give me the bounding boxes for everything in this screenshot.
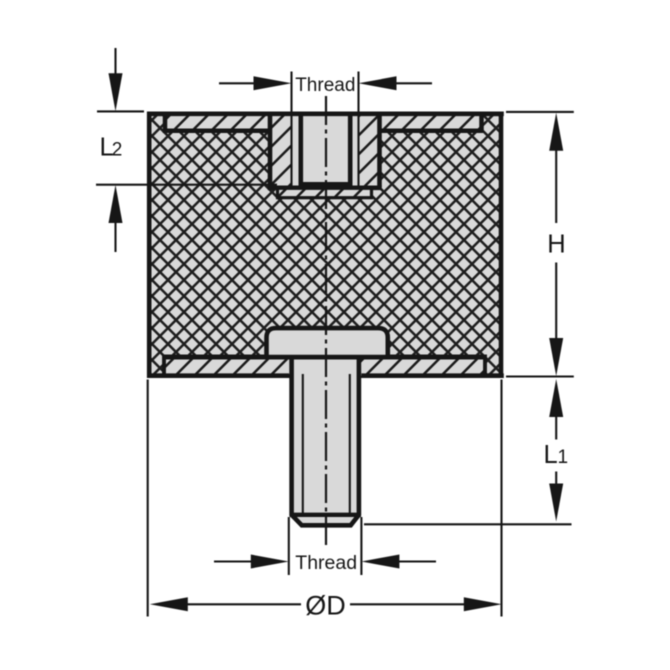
svg-text:Thread: Thread [295, 75, 355, 96]
svg-text:L: L [544, 441, 558, 469]
svg-text:H: H [547, 230, 565, 258]
svg-text:1: 1 [558, 447, 569, 468]
svg-text:2: 2 [112, 140, 123, 161]
svg-text:ØD: ØD [305, 590, 346, 620]
svg-text:Thread: Thread [295, 552, 357, 574]
